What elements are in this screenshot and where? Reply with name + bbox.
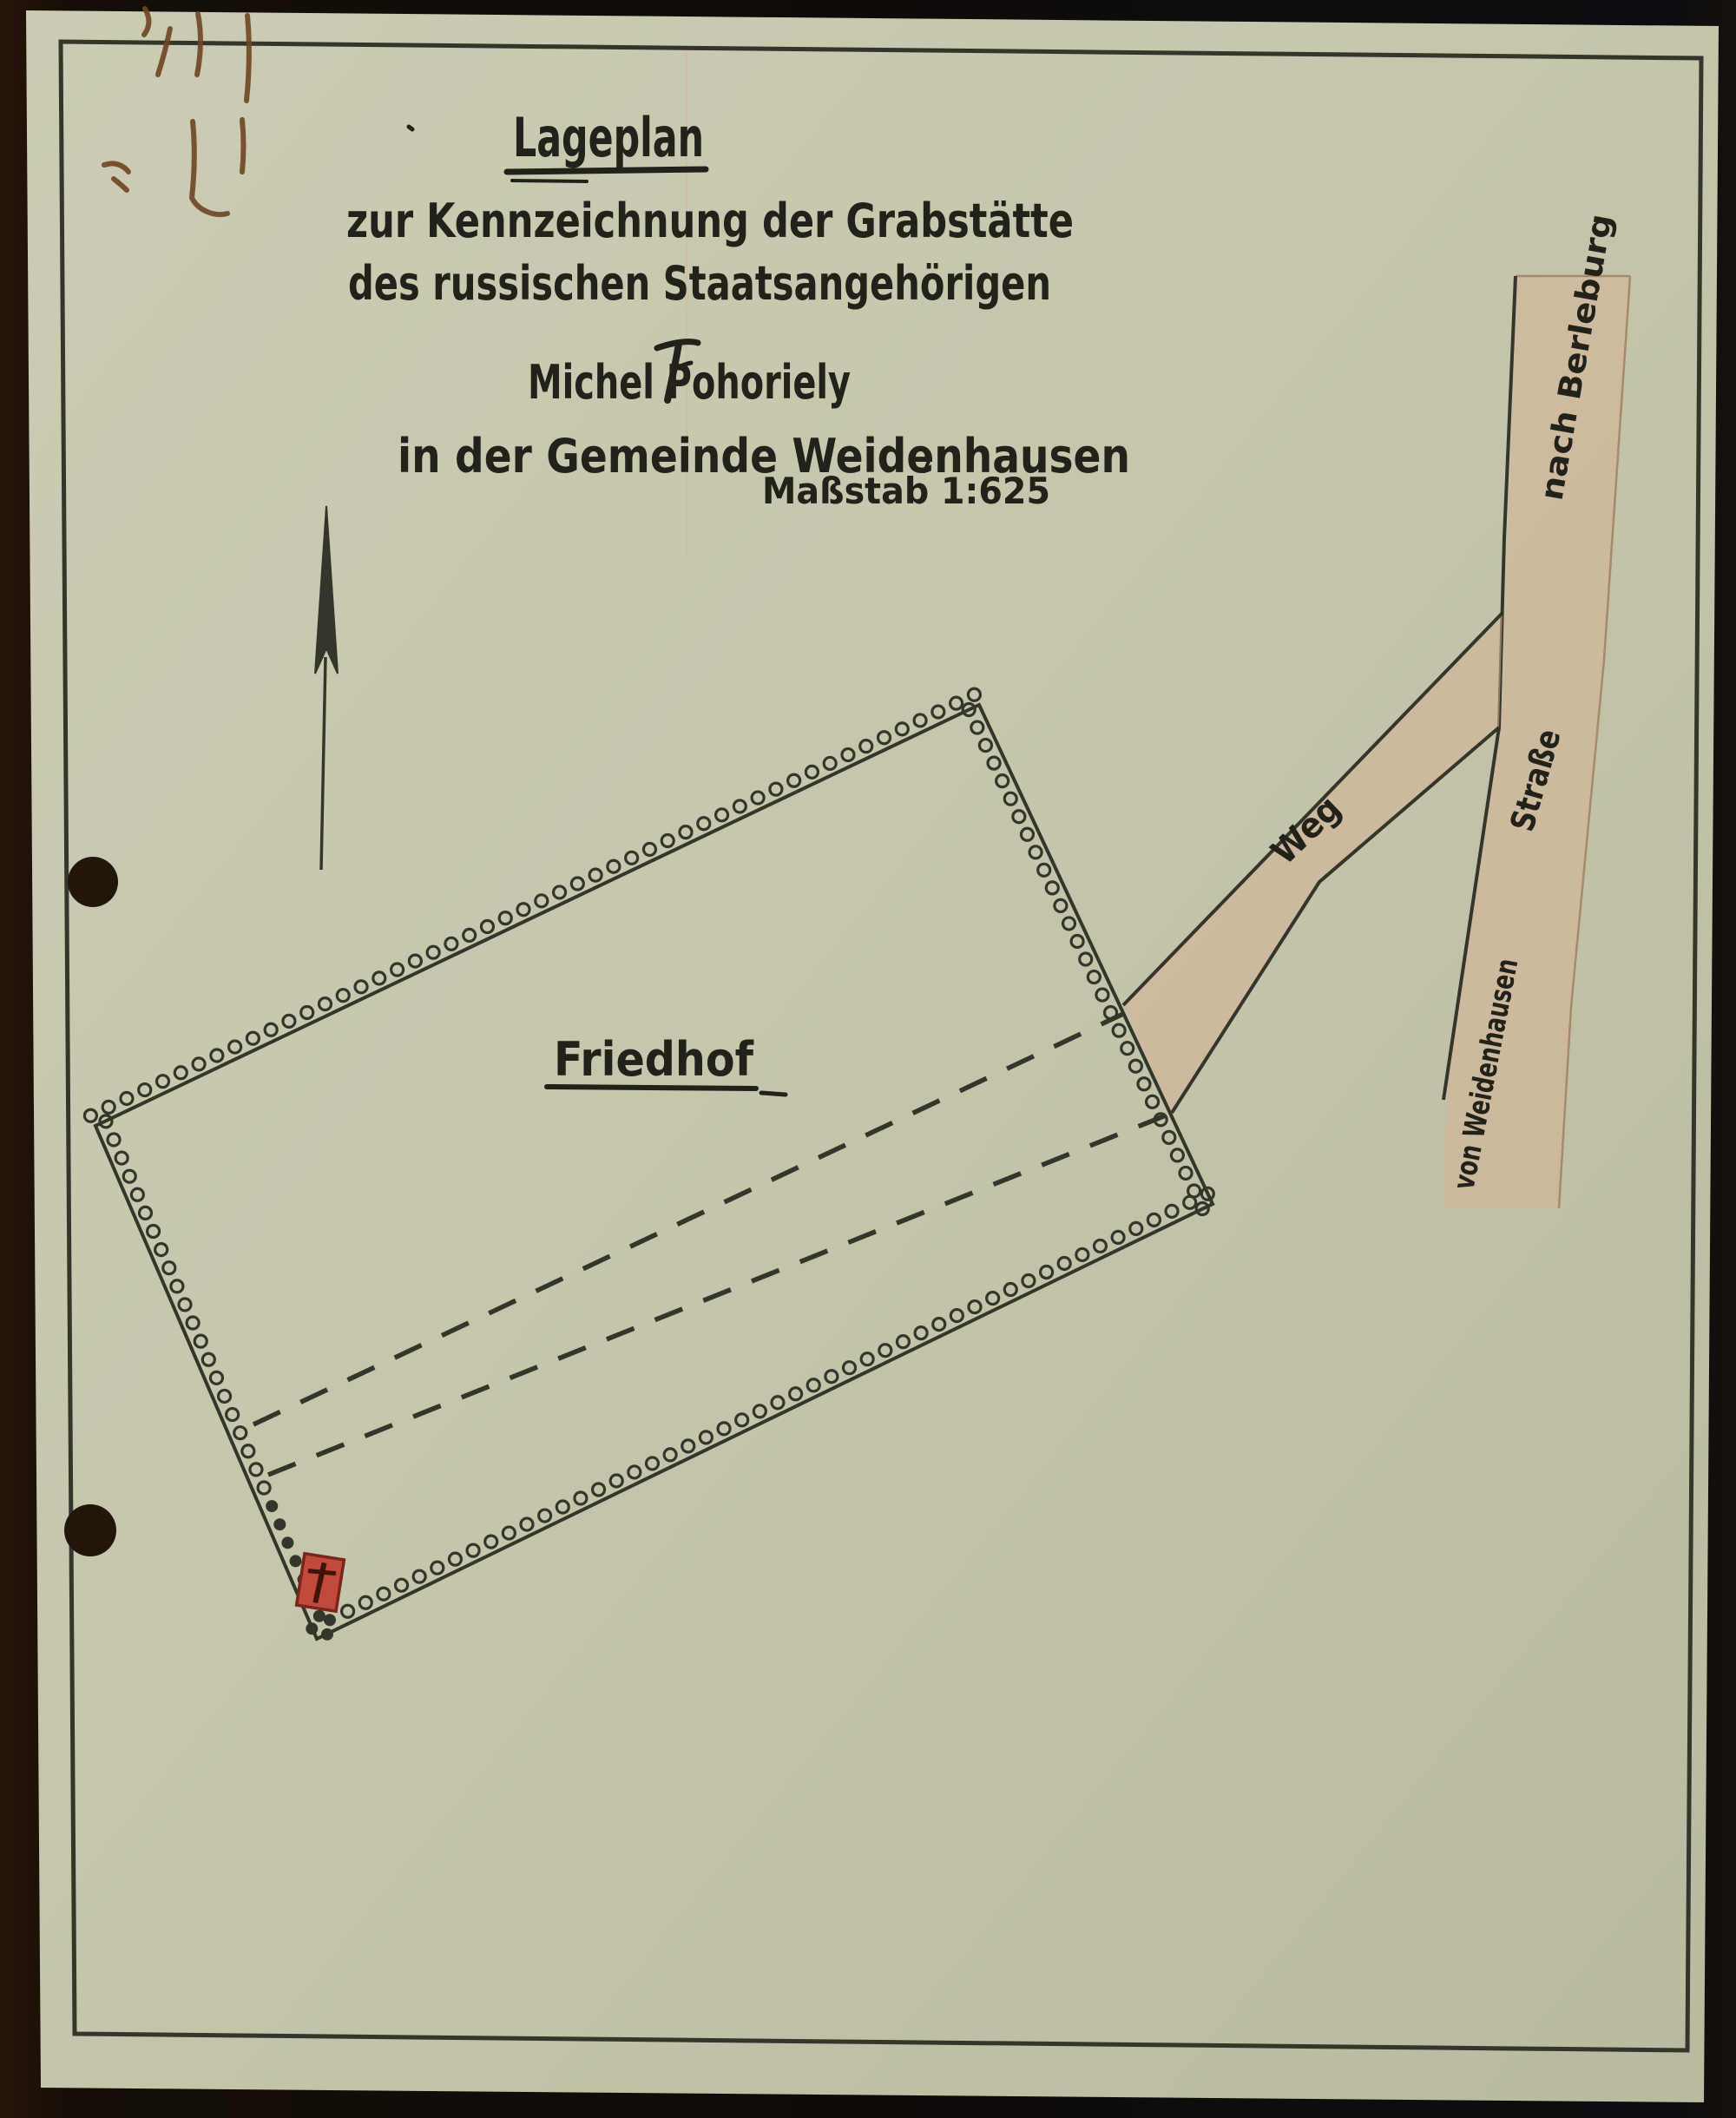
page-title: Lageplan: [513, 106, 704, 169]
grave-marker-icon: [297, 1554, 345, 1611]
scan-canvas: Lageplan zur Kennzeichnung der Grabstätt…: [0, 0, 1736, 2118]
subtitle-line-1: zur Kennzeichnung der Grabstätte: [346, 194, 1074, 248]
scale-label: Maßstab 1:625: [762, 470, 1050, 512]
subtitle-line-2: des russischen Staatsangehörigen: [348, 256, 1051, 311]
friedhof-label: Friedhof: [554, 1032, 753, 1087]
